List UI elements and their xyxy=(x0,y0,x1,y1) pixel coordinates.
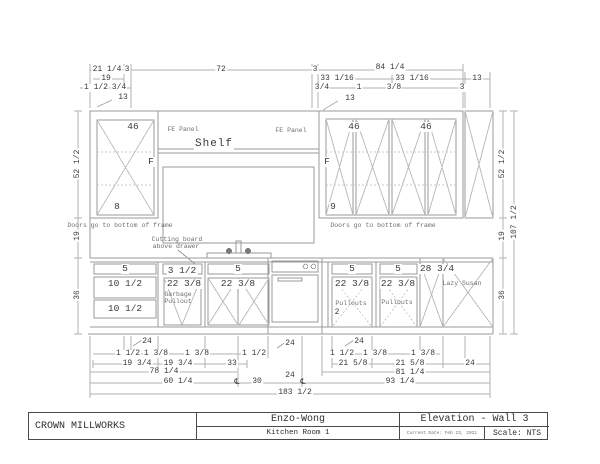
dim-label: 21 1/4 xyxy=(92,66,123,74)
dim-label: 84 1/4 xyxy=(375,64,406,72)
dim-label: 3/4 xyxy=(111,84,127,92)
dim-label: 60 1/4 xyxy=(163,378,194,386)
shelf-label: Shelf xyxy=(194,139,234,150)
dim-label: 1 3/8 xyxy=(410,350,436,358)
centerline-symbol: ℄ xyxy=(233,378,240,386)
dim-label: 1 xyxy=(356,84,363,92)
door-width-label: 22 3/8 xyxy=(380,279,416,289)
drawer-label: 5 xyxy=(234,264,242,274)
room-name: Kitchen Room 1 xyxy=(197,426,399,439)
dim-label: 24 xyxy=(284,372,296,380)
pullouts-note: Pullouts xyxy=(380,300,413,307)
dim-label: 33 1/16 xyxy=(319,75,355,83)
fe-panel-label: FE Panel xyxy=(274,128,307,135)
door-width-label: 22 3/8 xyxy=(220,279,256,289)
dim-label: 1 3/8 xyxy=(143,350,169,358)
dim-label: 30 xyxy=(251,378,263,386)
dim-leader-label: 24 xyxy=(353,338,365,346)
cabinet-number: 46 xyxy=(347,122,360,132)
dim-label: 19 xyxy=(100,75,112,83)
cabinet-id: 9 xyxy=(329,202,337,212)
lazy-susan-note: Lazy Susan xyxy=(441,281,482,288)
dim-label: 1 3/8 xyxy=(362,350,388,358)
cabinet-letter: F xyxy=(147,157,155,167)
drawer-label: 3 1/2 xyxy=(167,266,198,276)
sheet-title: Elevation - Wall 3 xyxy=(399,413,549,426)
drawer-label: 10 1/2 xyxy=(107,304,143,314)
fe-panel-label: FE Panel xyxy=(166,127,199,134)
dim-leader-label: 13 xyxy=(117,94,129,102)
centerline-symbol: ℄ xyxy=(299,378,306,386)
dim-label: 19 xyxy=(499,230,507,242)
dim-label: 52 1/2 xyxy=(74,149,82,180)
doors-note: Doors go to bottom of frame xyxy=(329,223,436,230)
drawer-label: 5 xyxy=(348,264,356,274)
cabinet-letter: F xyxy=(323,157,331,167)
drawer-label: 5 xyxy=(121,264,129,274)
dim-label: 1 1/2 xyxy=(241,350,267,358)
dim-label: 3 xyxy=(312,66,319,74)
dim-label: 1 1/2 xyxy=(329,350,355,358)
cabinet-number: 46 xyxy=(126,122,139,132)
dim-label: 33 1/16 xyxy=(394,75,430,83)
dim-label: 21 5/8 xyxy=(395,360,426,368)
title-block: CROWN MILLWORKS Enzo-Wong Kitchen Room 1… xyxy=(28,412,548,440)
garbage-pullout-note: Pullout xyxy=(163,299,192,306)
cabinet-number: 46 xyxy=(419,122,432,132)
dim-label: 24 xyxy=(464,360,476,368)
dim-label: 72 xyxy=(215,66,227,74)
dim-label: 1 1/2 xyxy=(83,84,109,92)
drawer-label: 10 1/2 xyxy=(107,279,143,289)
dim-leader-label: 24 xyxy=(284,340,296,348)
door-width-label: 22 3/8 xyxy=(334,279,370,289)
doors-note: Doors go to bottom of frame xyxy=(66,223,173,230)
scale-label: Scale: NTS xyxy=(484,426,549,439)
dim-label: 183 1/2 xyxy=(277,389,313,397)
dim-label: 78 1/4 xyxy=(149,368,180,376)
dim-label: 81 1/4 xyxy=(395,369,426,377)
dim-label: 36 xyxy=(499,289,507,301)
dim-label: 1 3/8 xyxy=(184,350,210,358)
dim-label: 36 xyxy=(74,289,82,301)
dim-label: 52 1/2 xyxy=(499,149,507,180)
cabinet-id: 8 xyxy=(113,202,121,212)
dim-label: 1 1/2 xyxy=(115,350,141,358)
pullouts-note: Pullouts xyxy=(334,301,367,308)
dim-label: 33 xyxy=(226,360,238,368)
client-name: Enzo-Wong xyxy=(197,413,399,426)
dim-label: 3 xyxy=(459,84,466,92)
dim-label: 3/4 xyxy=(314,84,330,92)
door-width-label: 22 3/8 xyxy=(166,279,202,289)
dim-leader-label: 24 xyxy=(141,338,153,346)
pullouts-count: 2 xyxy=(334,309,341,317)
company-name: CROWN MILLWORKS xyxy=(29,413,197,439)
door-width-label: 28 3/4 xyxy=(419,264,455,274)
cutting-board-note: above drawer xyxy=(152,244,201,251)
dim-label: 19 3/4 xyxy=(122,360,153,368)
dim-label: 3 xyxy=(124,66,131,74)
dim-label: 93 1/4 xyxy=(385,378,416,386)
dim-leader-label: 13 xyxy=(344,95,356,103)
dim-label: 107 1/2 xyxy=(511,204,519,240)
current-date: Current Date: Feb 23, 2021 xyxy=(399,426,484,439)
dim-label: 19 xyxy=(74,230,82,242)
dim-label: 13 xyxy=(471,75,483,83)
elevation-sheet: 21 1/4 3 72 3 84 1/4 19 33 1/16 33 1/16 … xyxy=(0,0,600,464)
drawer-label: 5 xyxy=(394,264,402,274)
dim-label: 3/8 xyxy=(386,84,402,92)
dim-label: 21 5/8 xyxy=(338,360,369,368)
